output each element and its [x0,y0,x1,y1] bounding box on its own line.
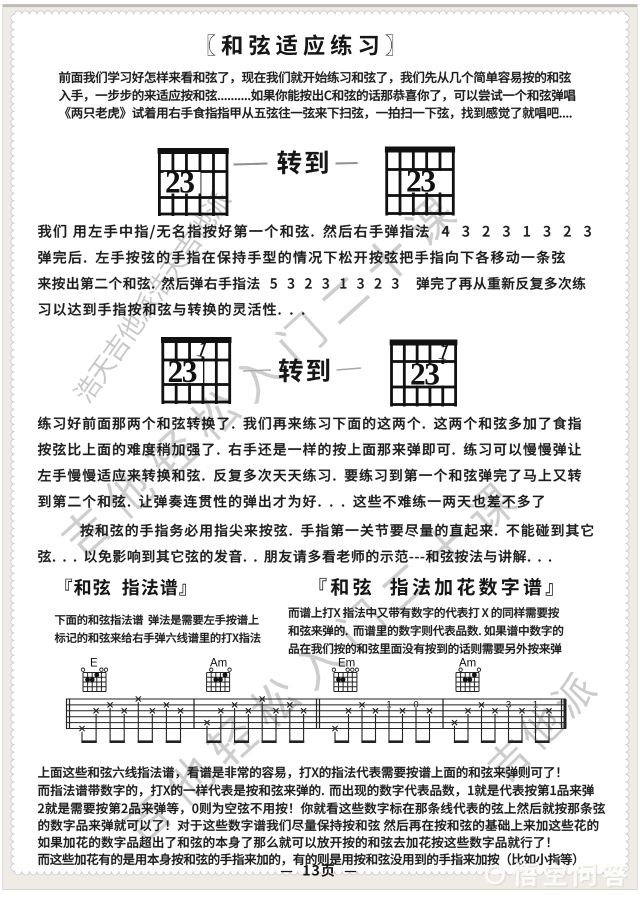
svg-text:23: 23 [410,357,439,392]
svg-text:1: 1 [386,700,391,711]
svg-text:0: 0 [413,700,418,711]
svg-text:3: 3 [506,700,511,711]
svg-text:Am: Am [210,658,227,670]
svg-text:23: 23 [406,164,435,199]
svg-text:Am: Am [459,658,476,670]
svg-text:23: 23 [168,354,197,389]
svg-text:Em: Em [338,658,355,670]
svg-text:23: 23 [165,165,194,200]
svg-text:E: E [90,658,98,670]
svg-text:1: 1 [533,700,538,711]
